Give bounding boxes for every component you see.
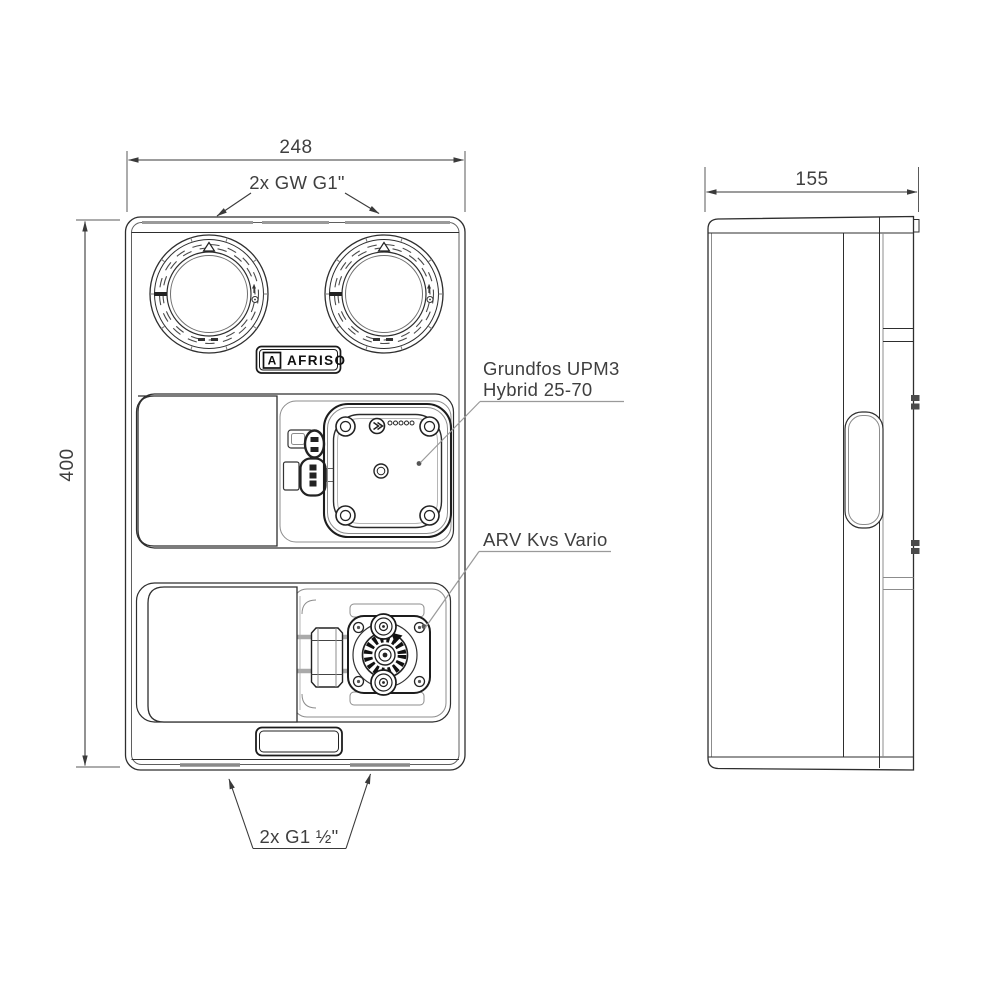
- dim-value-248: 248: [279, 137, 312, 158]
- grundfos-logo-icon: [370, 419, 385, 434]
- callout-valve-label: ARV Kvs Vario: [483, 529, 608, 550]
- callout-pump-line2: Hybrid 25-70: [483, 379, 593, 400]
- callout-top-connections: 2x GW G1": [217, 172, 379, 216]
- callout-bottom-label: 2x G1 ½": [260, 826, 339, 847]
- pump-center-screw-icon: [374, 464, 388, 478]
- bracket-slot-upper: [883, 329, 914, 342]
- mounting-tab-top: [914, 220, 920, 233]
- knob-right: [325, 235, 443, 353]
- side-view: [708, 217, 920, 771]
- valve-top-boss: [371, 614, 396, 639]
- bracket-slot-lower: [883, 578, 914, 590]
- pump-section: [137, 394, 454, 548]
- dimension-depth: 155: [705, 167, 919, 212]
- insulation-block-lower: [148, 587, 297, 722]
- wall-bracket-recess: [845, 412, 883, 528]
- valve: [348, 614, 430, 695]
- type-label-plate: [256, 728, 342, 756]
- valve-bottom-boss: [371, 670, 396, 695]
- dim-value-400: 400: [57, 448, 78, 481]
- callout-top-label: 2x GW G1": [249, 172, 345, 193]
- callout-pump-line1: Grundfos UPM3: [483, 358, 620, 379]
- brand-plate: A AFRISO: [257, 347, 347, 374]
- dimension-height: 400: [57, 220, 120, 767]
- knob-left: [150, 235, 268, 353]
- technical-drawing-page: A AFRISO: [0, 0, 1000, 1000]
- clip-tabs-upper: [911, 395, 920, 410]
- dim-value-155: 155: [795, 169, 828, 190]
- front-view: A AFRISO: [126, 217, 466, 770]
- insulation-block-upper: [138, 396, 277, 546]
- drawing-canvas: A AFRISO: [0, 0, 1000, 1000]
- callout-valve: ARV Kvs Vario: [425, 529, 611, 628]
- brand-mark: A: [268, 354, 277, 368]
- callout-bottom-connections: 2x G1 ½": [229, 774, 371, 849]
- brand-name: AFRISO: [287, 353, 346, 368]
- connector-socket-icon: [305, 431, 324, 458]
- clip-tabs-lower: [911, 540, 920, 554]
- union-nut-icon: [312, 628, 343, 687]
- valve-section: [137, 583, 451, 722]
- pump: [324, 404, 451, 537]
- pump-connectors: [284, 430, 337, 496]
